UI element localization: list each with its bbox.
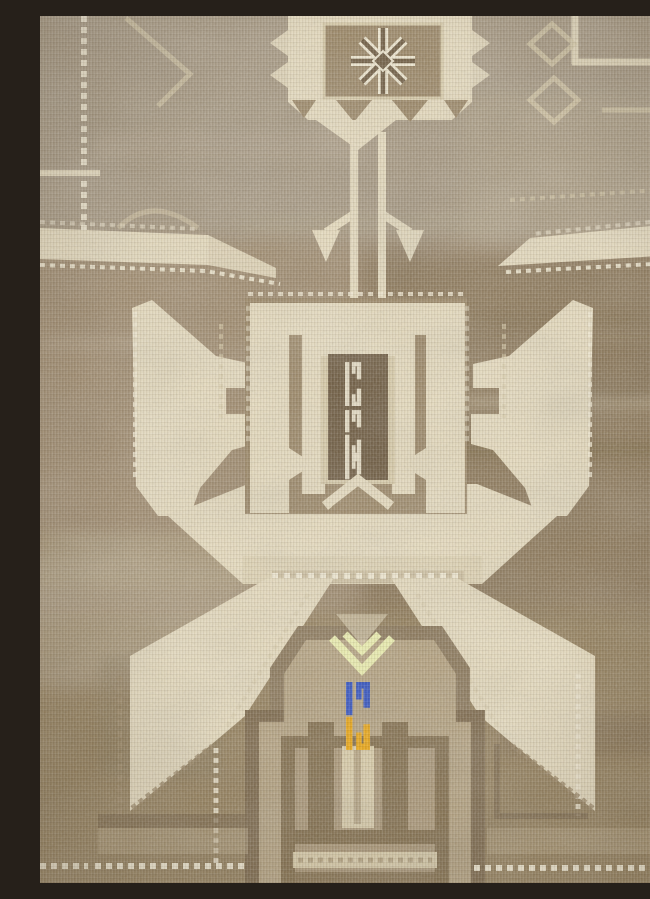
rug-photograph <box>40 16 650 883</box>
rug-scene <box>40 16 650 883</box>
knot-grain-texture <box>40 16 650 883</box>
